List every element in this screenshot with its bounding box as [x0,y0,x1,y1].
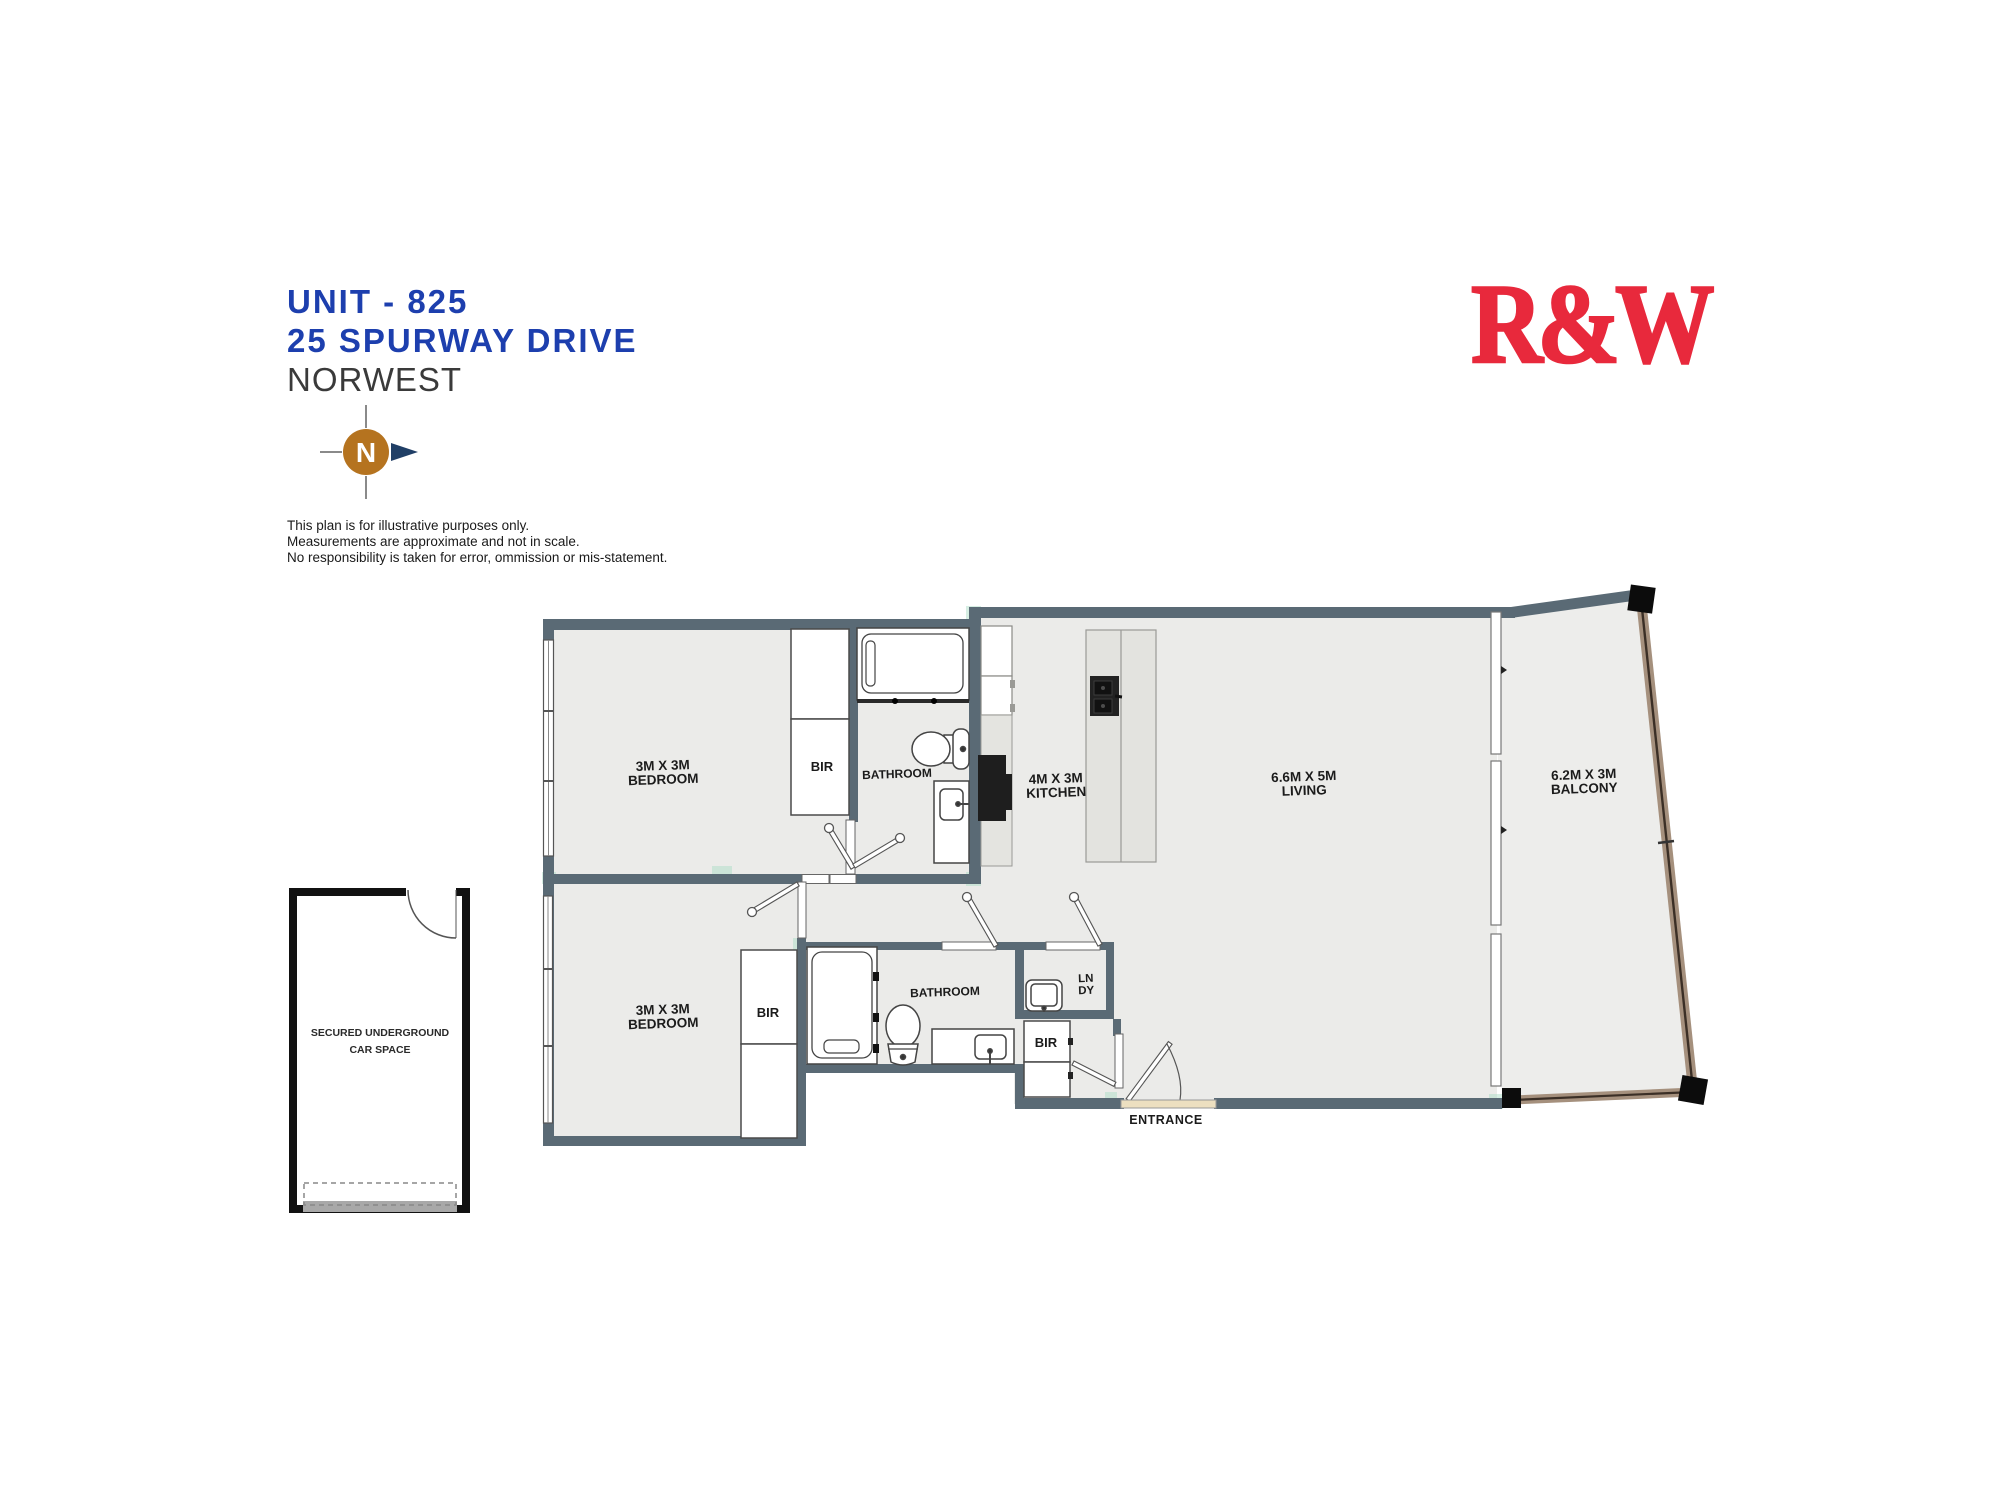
svg-text:BIR: BIR [757,1005,780,1020]
svg-text:BIR: BIR [1035,1035,1058,1050]
svg-text:SECURED UNDERGROUND: SECURED UNDERGROUND [311,1027,450,1039]
svg-text:ENTRANCE: ENTRANCE [1129,1113,1202,1127]
svg-text:NORWEST: NORWEST [287,361,462,398]
svg-text:BALCONY: BALCONY [1551,780,1618,797]
svg-text:KITCHEN: KITCHEN [1026,784,1086,801]
svg-text:N: N [356,437,376,468]
svg-text:DY: DY [1078,985,1095,998]
svg-text:No responsibility is taken for: No responsibility is taken for error, om… [287,550,667,565]
svg-text:LN: LN [1078,973,1094,986]
svg-text:BEDROOM: BEDROOM [628,1015,699,1032]
svg-text:BEDROOM: BEDROOM [628,771,699,788]
svg-text:BATHROOM: BATHROOM [910,984,980,1000]
svg-text:LIVING: LIVING [1282,782,1328,799]
svg-text:BATHROOM: BATHROOM [862,766,932,782]
svg-text:R&W: R&W [1471,262,1713,387]
svg-text:CAR SPACE: CAR SPACE [349,1044,410,1056]
svg-text:Measurements are approximate a: Measurements are approximate and not in … [287,534,580,549]
svg-text:25 SPURWAY DRIVE: 25 SPURWAY DRIVE [287,322,638,359]
svg-text:BIR: BIR [811,759,834,774]
svg-text:This plan is for illustrative: This plan is for illustrative purposes o… [287,518,529,533]
svg-text:UNIT - 825: UNIT - 825 [287,283,468,320]
